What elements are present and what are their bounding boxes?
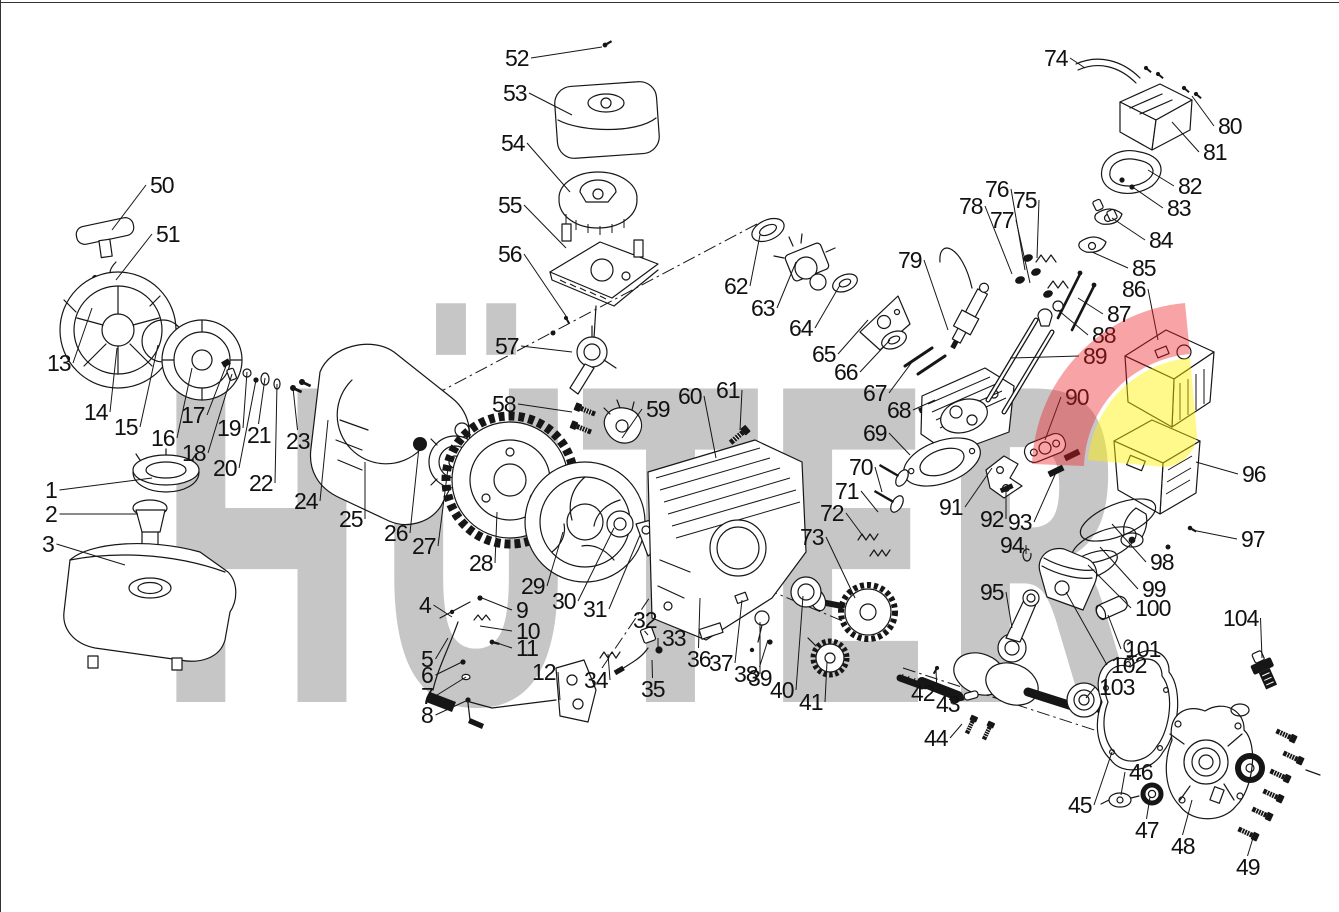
part-label-104: 104 (1223, 605, 1260, 631)
leader-line-55 (524, 205, 566, 248)
air-filter-cover (554, 81, 661, 160)
leader-line-75 (1037, 200, 1039, 258)
part-label-62: 62 (724, 273, 748, 299)
part-label-37: 37 (709, 650, 733, 676)
part-label-2: 2 (45, 501, 57, 527)
carb-gasket-62 (748, 214, 787, 246)
part-label-41: 41 (799, 689, 823, 715)
part-label-91: 91 (939, 494, 963, 520)
leader-line-80 (1192, 96, 1214, 126)
part-label-46: 46 (1129, 759, 1153, 785)
leader-line-84 (1112, 218, 1145, 240)
part-label-13: 13 (47, 350, 71, 376)
part-label-42: 42 (911, 680, 935, 706)
part-label-18: 18 (182, 440, 206, 466)
part-label-80: 80 (1218, 113, 1242, 139)
part-label-15: 15 (114, 414, 138, 440)
part-label-76: 76 (985, 176, 1009, 202)
leader-line-96 (1196, 462, 1238, 474)
part-label-8: 8 (421, 702, 433, 728)
part-label-68: 68 (887, 397, 911, 423)
leader-line-97 (1192, 530, 1237, 539)
crank-bearing-front (607, 511, 633, 537)
part-label-67: 67 (863, 380, 887, 406)
part-label-17: 17 (181, 402, 205, 428)
cam-bearing-40 (791, 577, 821, 607)
part-label-64: 64 (789, 315, 814, 341)
part-label-32: 32 (633, 607, 657, 633)
crank-bearing-103 (1067, 683, 1101, 717)
leader-line-63 (777, 262, 796, 308)
part-label-3: 3 (42, 531, 54, 557)
part-label-26: 26 (384, 520, 408, 546)
part-label-14: 14 (84, 399, 109, 425)
part-label-56: 56 (498, 241, 522, 267)
part-label-31: 31 (583, 596, 607, 622)
part-label-65: 65 (812, 341, 836, 367)
oil-seal-47 (1143, 785, 1161, 803)
part-label-84: 84 (1149, 227, 1174, 253)
carb-gasket-64 (830, 270, 860, 295)
part-label-95: 95 (980, 579, 1004, 605)
flywheel-nut (413, 437, 427, 451)
part-label-58: 58 (492, 391, 516, 417)
part-label-29: 29 (521, 573, 545, 599)
part-label-16: 16 (151, 425, 175, 451)
part-label-69: 69 (863, 420, 887, 446)
part-label-94: 94 (1000, 532, 1025, 558)
part-label-59: 59 (646, 396, 670, 422)
part-label-34: 34 (584, 667, 609, 693)
part-label-103: 103 (1099, 674, 1135, 700)
exploded-diagram: HÜTER (0, 0, 1339, 912)
rocker-cover (1120, 84, 1192, 150)
part-label-79: 79 (898, 247, 922, 273)
part-label-21: 21 (247, 422, 271, 448)
part-label-48: 48 (1171, 833, 1195, 859)
part-label-36: 36 (687, 646, 711, 672)
part-label-72: 72 (820, 500, 844, 526)
part-label-97: 97 (1241, 526, 1265, 552)
part-label-1: 1 (45, 477, 57, 503)
leader-line-85 (1092, 252, 1128, 268)
air-filter-base (550, 224, 658, 306)
part-label-49: 49 (1236, 854, 1260, 880)
leader-line-1 (60, 478, 153, 490)
oil-sensor-104 (1231, 648, 1282, 716)
part-label-51: 51 (156, 221, 180, 247)
leader-line-77 (1016, 220, 1030, 283)
muffler-screw-97 (1187, 525, 1197, 534)
part-label-98: 98 (1150, 549, 1174, 575)
part-label-43: 43 (936, 691, 960, 717)
part-label-19: 19 (217, 415, 241, 441)
leader-line-51 (116, 234, 152, 280)
part-label-27: 27 (412, 533, 436, 559)
leader-line-52 (531, 47, 602, 58)
part-label-12: 12 (532, 659, 556, 685)
part-label-66: 66 (834, 359, 858, 385)
part-label-78: 78 (959, 193, 983, 219)
exploded-parts-diagram-page: HÜTER (0, 0, 1339, 912)
leader-line-74 (1070, 58, 1085, 68)
part-label-50: 50 (150, 172, 174, 198)
part-label-4: 4 (419, 592, 432, 618)
part-label-52: 52 (505, 45, 529, 71)
part-label-92: 92 (980, 506, 1004, 532)
rocker-arms (1079, 199, 1122, 253)
part-label-54: 54 (501, 130, 526, 156)
part-label-39: 39 (748, 665, 772, 691)
part-label-53: 53 (503, 80, 527, 106)
part-label-61: 61 (716, 377, 740, 403)
part-label-77: 77 (990, 207, 1014, 233)
part-label-96: 96 (1242, 461, 1266, 487)
part-label-73: 73 (800, 524, 824, 550)
starter-pulley (162, 320, 242, 400)
part-label-47: 47 (1135, 817, 1159, 843)
part-label-86: 86 (1122, 276, 1146, 302)
part-label-11: 11 (516, 635, 538, 661)
part-label-83: 83 (1167, 195, 1191, 221)
part-label-44: 44 (924, 725, 949, 751)
recoil-starter (60, 272, 176, 388)
air-cover-screw (602, 39, 613, 48)
part-label-55: 55 (498, 192, 522, 218)
part-label-100: 100 (1135, 595, 1171, 621)
part-label-33: 33 (662, 625, 686, 651)
part-label-57: 57 (495, 333, 519, 359)
part-label-30: 30 (552, 588, 576, 614)
leader-line-83 (1134, 188, 1163, 208)
fuel-tank (64, 544, 236, 670)
leader-line-62 (750, 235, 760, 286)
carburetor (774, 234, 835, 290)
part-label-22: 22 (249, 470, 273, 496)
part-label-74: 74 (1044, 45, 1069, 71)
valve-springs-cluster (1014, 253, 1068, 299)
part-label-75: 75 (1013, 187, 1037, 213)
crankcase-cover (1166, 706, 1262, 819)
part-label-24: 24 (294, 488, 319, 514)
part-label-25: 25 (339, 506, 363, 532)
part-label-70: 70 (849, 454, 873, 480)
part-label-23: 23 (286, 428, 310, 454)
part-label-40: 40 (770, 677, 794, 703)
part-label-35: 35 (641, 676, 665, 702)
breather-tube-74 (1076, 59, 1140, 83)
part-label-60: 60 (678, 383, 702, 409)
part-label-28: 28 (469, 550, 493, 576)
part-label-81: 81 (1203, 139, 1227, 165)
part-label-20: 20 (213, 455, 237, 481)
part-label-63: 63 (751, 295, 775, 321)
part-label-45: 45 (1068, 792, 1092, 818)
